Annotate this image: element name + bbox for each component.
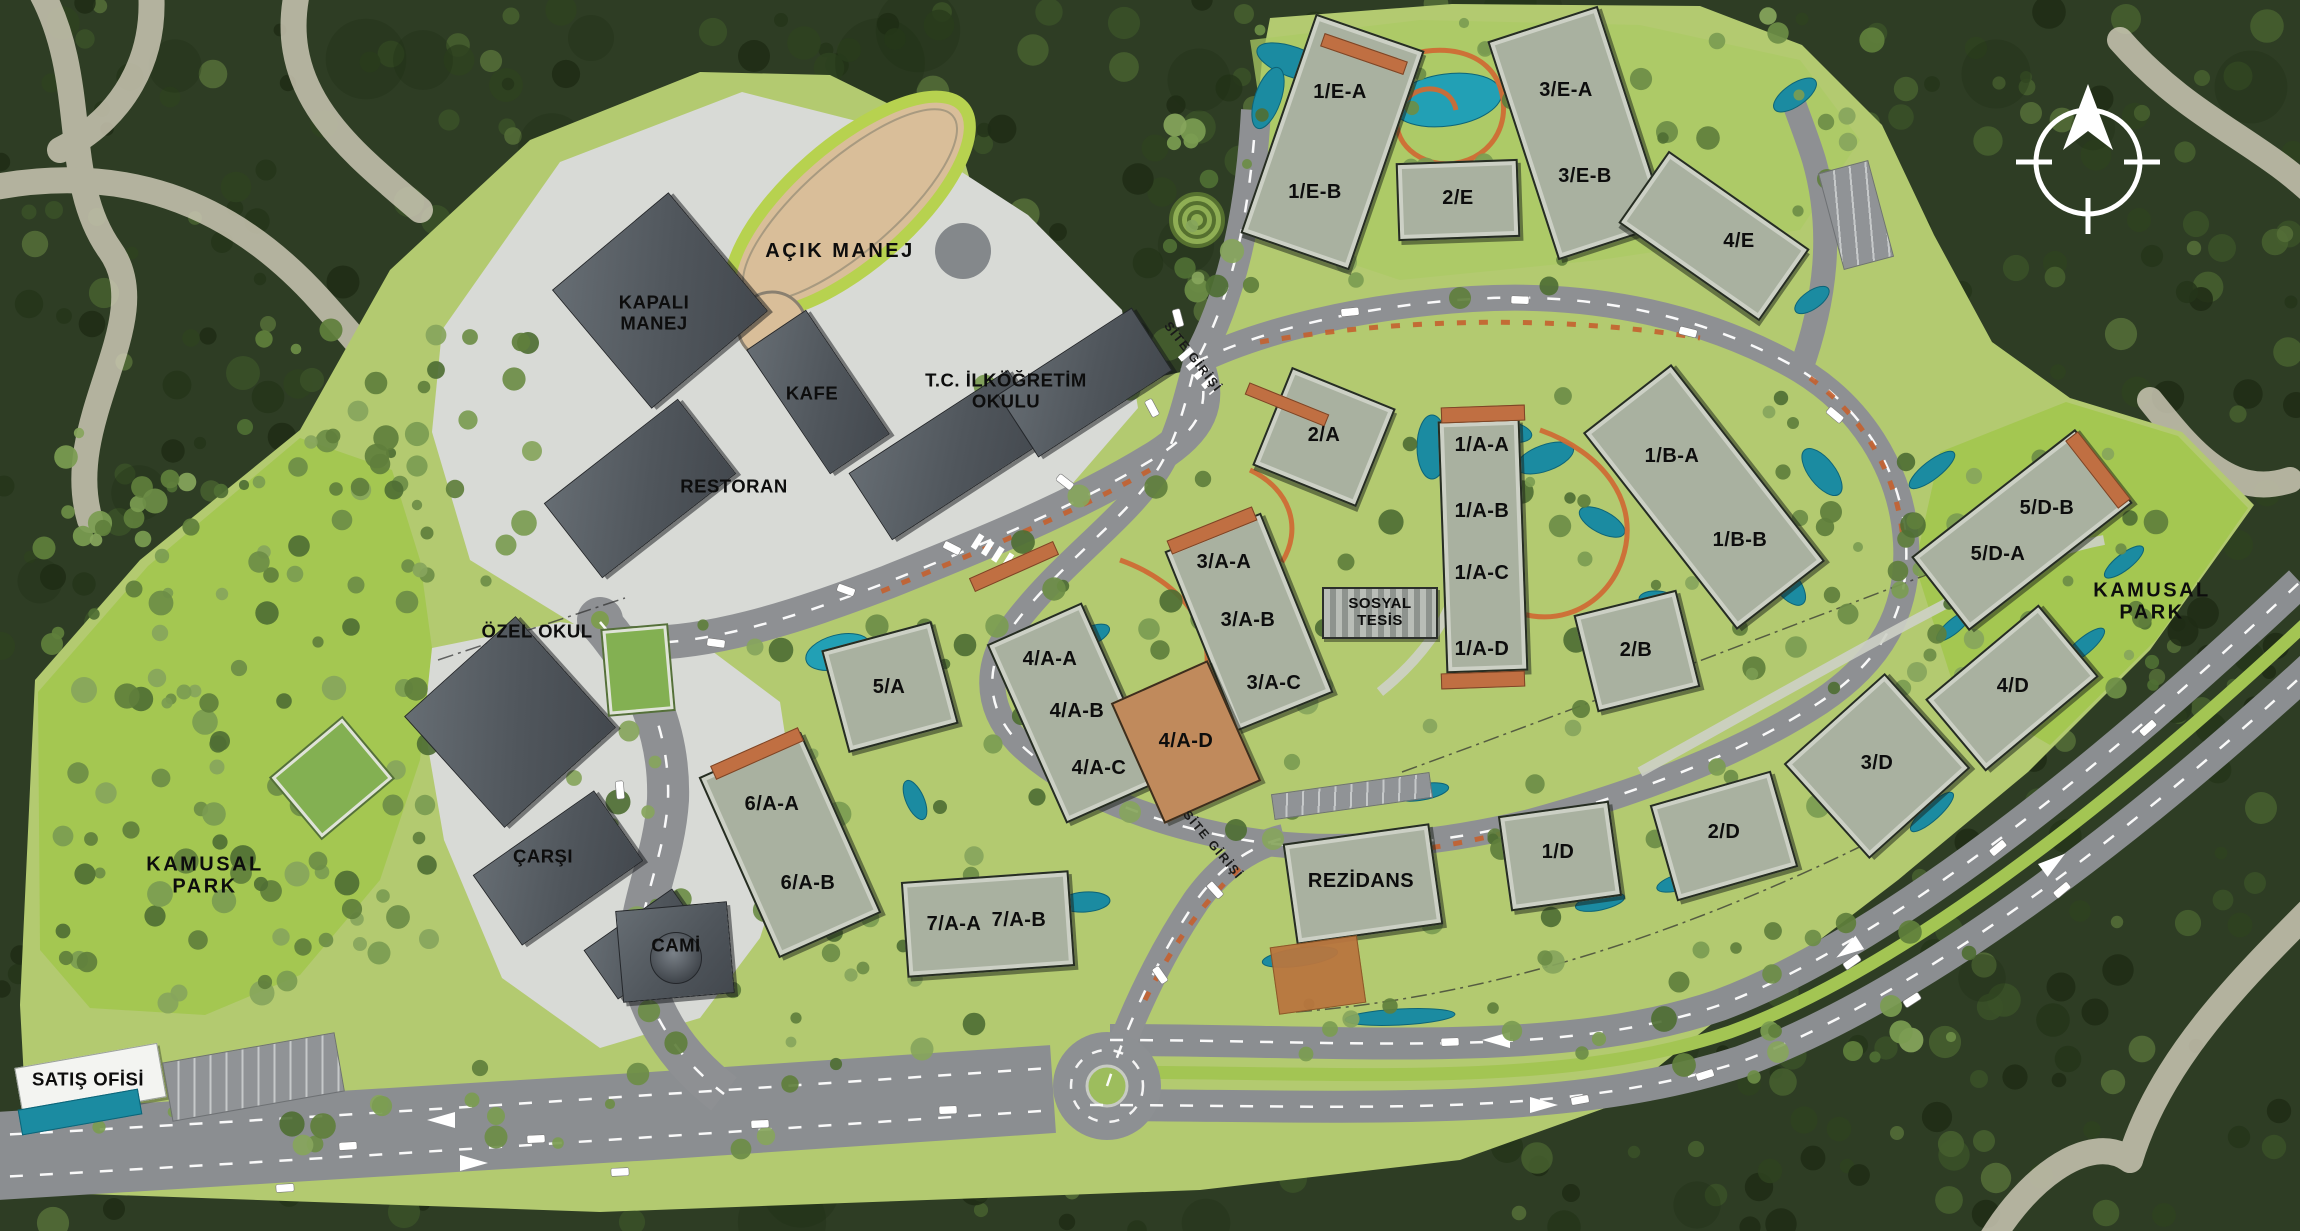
hedge-maze	[1171, 194, 1223, 246]
lunging-ring	[738, 292, 806, 360]
plaza-circle	[935, 223, 991, 279]
map-base	[0, 0, 2300, 1231]
site-plan-map: 1/E-A1/E-B2/E3/E-A3/E-B4/E2/A1/A-A1/A-B1…	[0, 0, 2300, 1231]
